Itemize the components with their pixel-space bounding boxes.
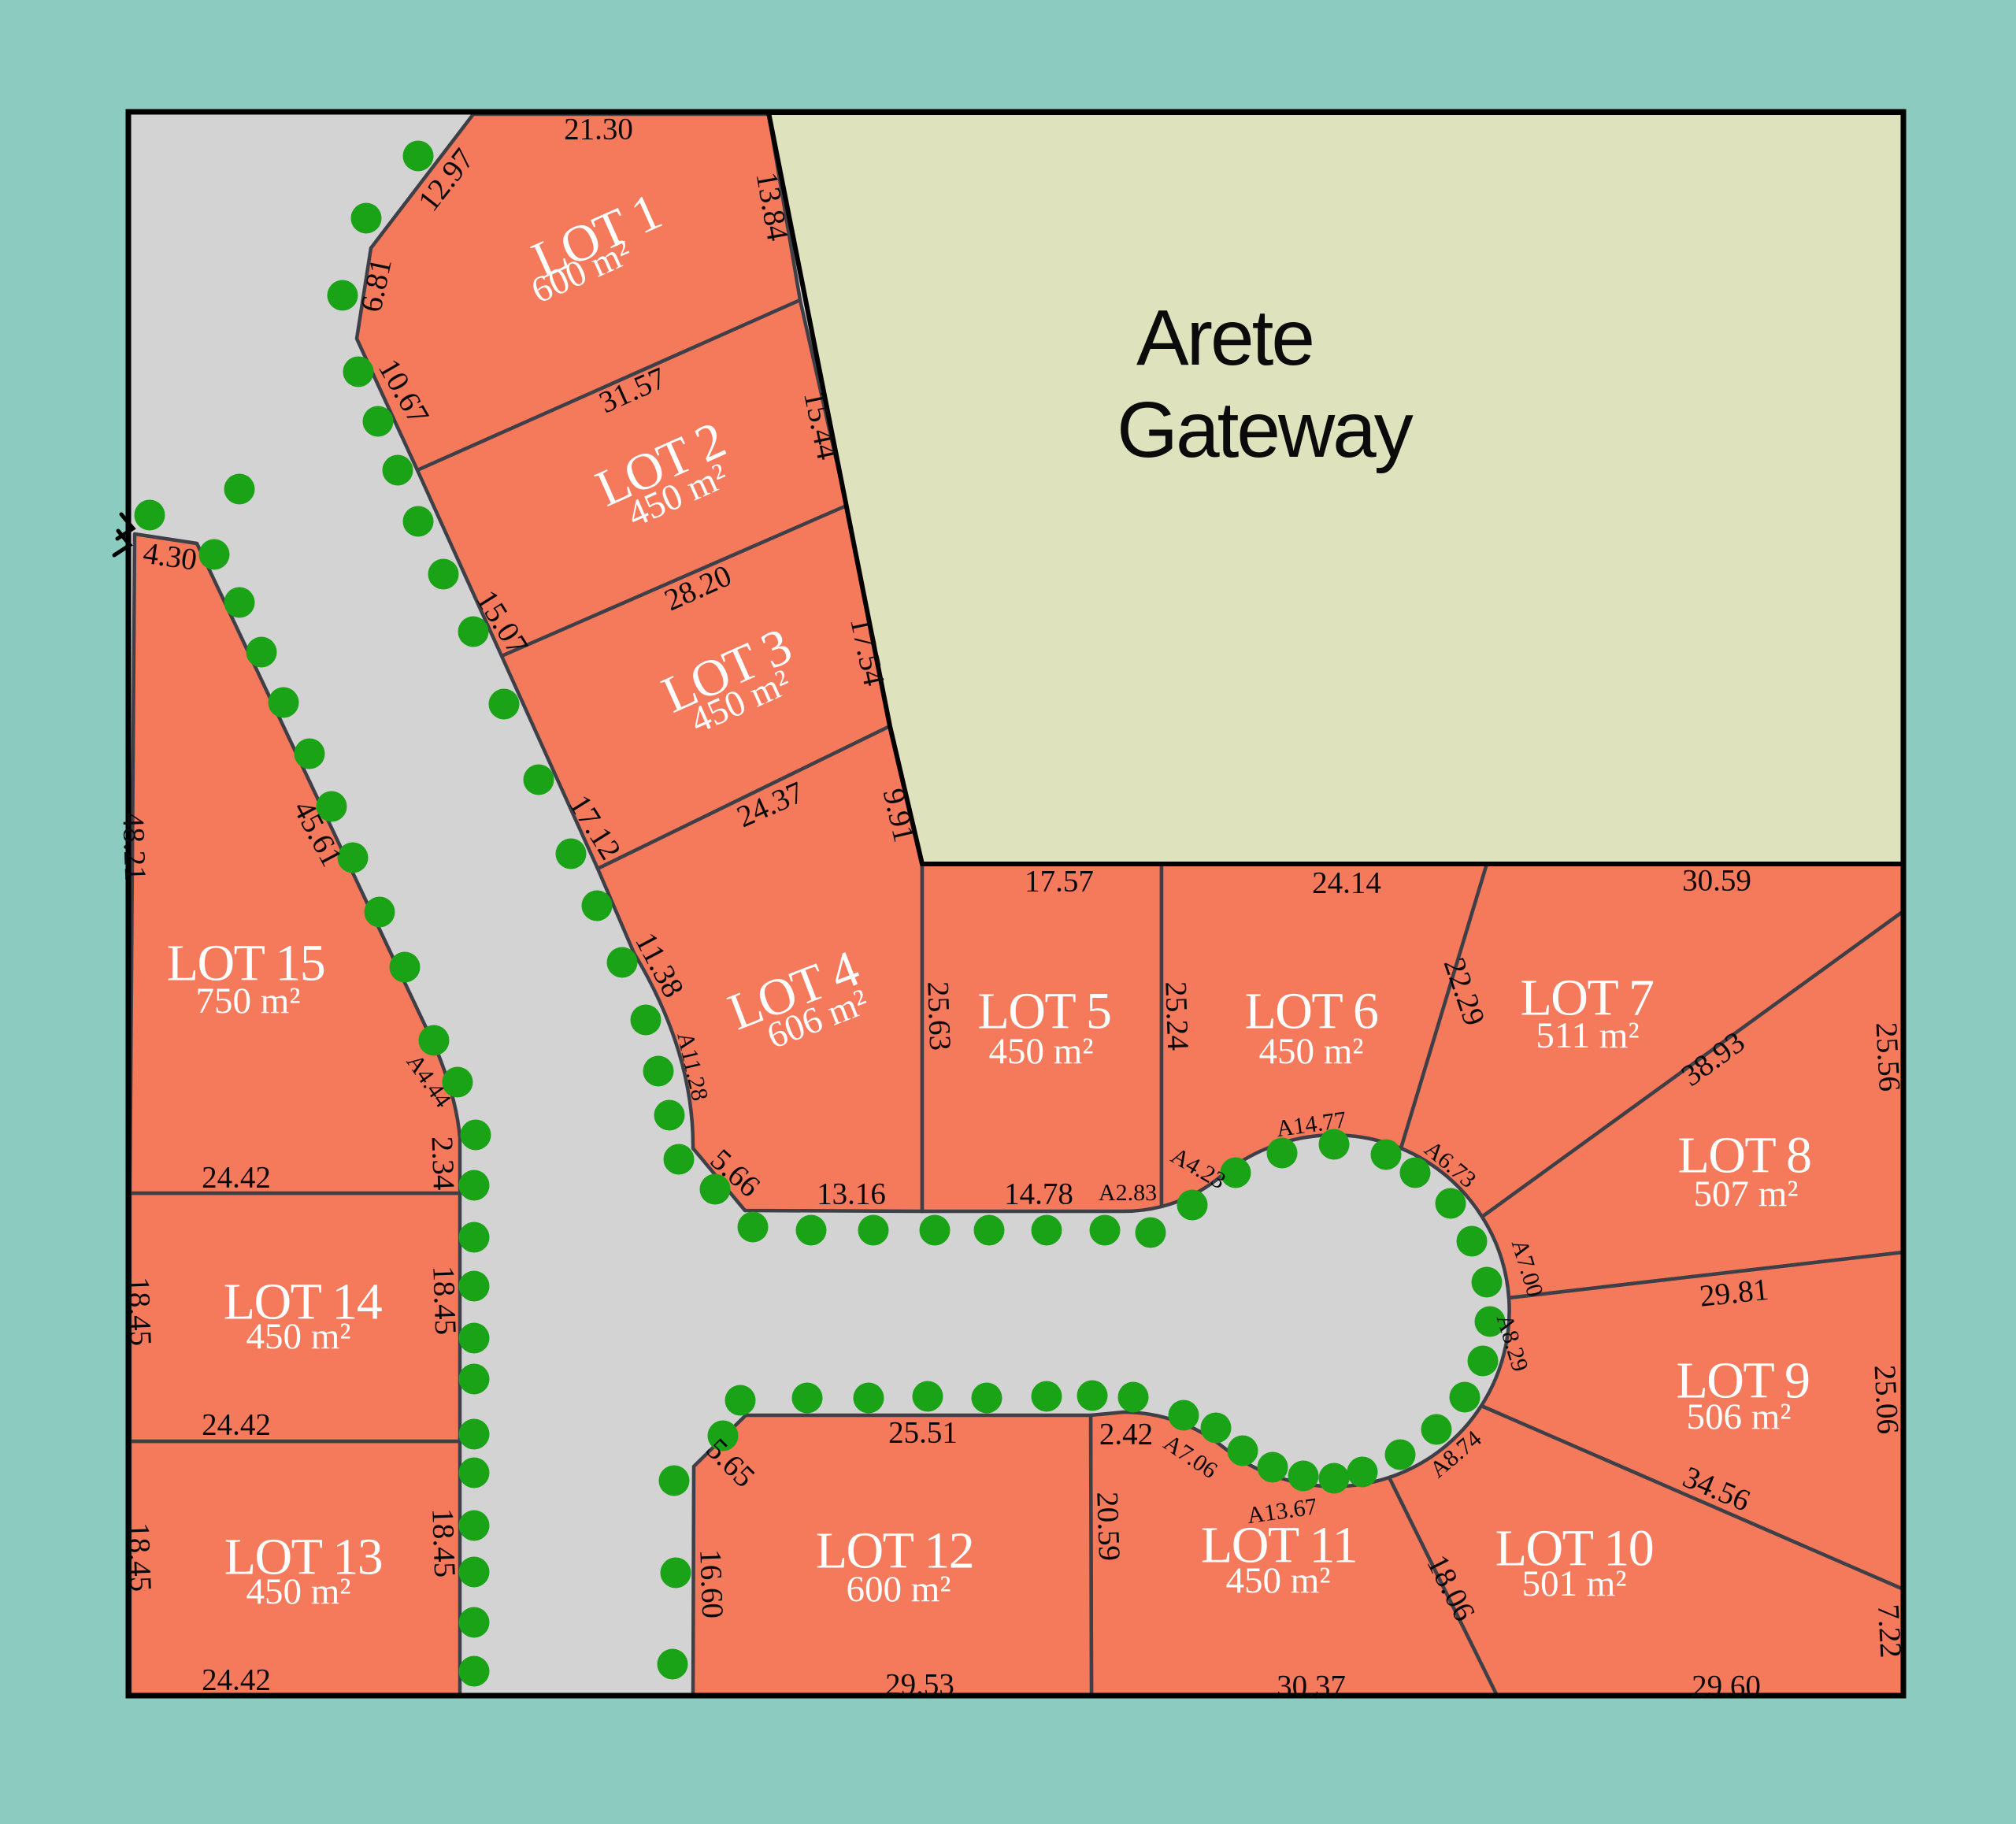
svg-text:24.42: 24.42	[202, 1407, 271, 1441]
svg-text:24.14: 24.14	[1312, 866, 1381, 899]
svg-text:18.45: 18.45	[425, 1507, 461, 1577]
svg-text:506 m²: 506 m²	[1687, 1396, 1792, 1437]
svg-text:20.59: 20.59	[1090, 1491, 1126, 1561]
svg-text:30.59: 30.59	[1682, 863, 1751, 897]
svg-text:24.42: 24.42	[202, 1160, 271, 1194]
svg-text:24.42: 24.42	[202, 1663, 271, 1696]
svg-text:450 m²: 450 m²	[246, 1571, 351, 1612]
svg-text:25.56: 25.56	[1869, 1021, 1907, 1092]
svg-text:18.45: 18.45	[121, 1276, 157, 1346]
svg-text:450 m²: 450 m²	[1226, 1560, 1331, 1601]
svg-text:450 m²: 450 m²	[246, 1316, 351, 1357]
svg-text:750 m²: 750 m²	[196, 981, 301, 1021]
svg-text:501 m²: 501 m²	[1522, 1563, 1627, 1604]
svg-text:30.37: 30.37	[1277, 1669, 1346, 1703]
svg-text:21.30: 21.30	[564, 112, 633, 146]
svg-text:29.53: 29.53	[885, 1667, 954, 1701]
svg-text:25.63: 25.63	[921, 981, 957, 1051]
svg-text:450 m²: 450 m²	[989, 1031, 1094, 1072]
svg-text:13.16: 13.16	[817, 1177, 886, 1210]
svg-text:450 m²: 450 m²	[1259, 1031, 1364, 1072]
svg-text:A2.83: A2.83	[1099, 1180, 1157, 1206]
svg-text:17.57: 17.57	[1025, 864, 1094, 898]
svg-text:29.60: 29.60	[1692, 1669, 1761, 1703]
svg-text:Gateway: Gateway	[1117, 386, 1414, 474]
svg-text:507 m²: 507 m²	[1694, 1173, 1799, 1214]
svg-text:29.81: 29.81	[1698, 1273, 1770, 1314]
svg-text:511 m²: 511 m²	[1536, 1015, 1639, 1056]
svg-text:25.51: 25.51	[888, 1415, 958, 1449]
svg-text:18.45: 18.45	[426, 1265, 462, 1335]
svg-text:18.45: 18.45	[121, 1522, 157, 1592]
svg-text:25.24: 25.24	[1158, 981, 1195, 1051]
svg-text:25.06: 25.06	[1867, 1364, 1905, 1435]
svg-text:48.21: 48.21	[116, 811, 152, 881]
svg-text:Arete: Arete	[1136, 294, 1313, 382]
svg-text:2.34: 2.34	[425, 1136, 461, 1191]
svg-text:600 m²: 600 m²	[847, 1569, 951, 1610]
svg-text:14.78: 14.78	[1004, 1177, 1073, 1210]
svg-text:16.60: 16.60	[693, 1548, 729, 1618]
svg-text:2.42: 2.42	[1099, 1417, 1153, 1451]
svg-text:7.22: 7.22	[1871, 1603, 1908, 1659]
